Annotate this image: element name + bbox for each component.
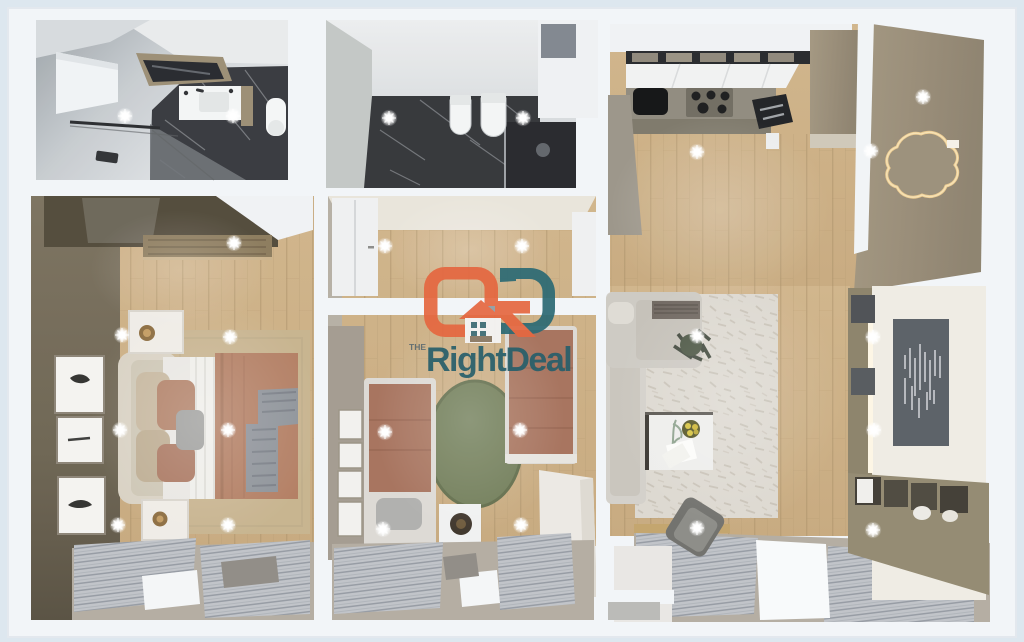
svg-text:RightDeal: RightDeal — [426, 341, 571, 379]
svg-text:THE: THE — [409, 342, 426, 352]
